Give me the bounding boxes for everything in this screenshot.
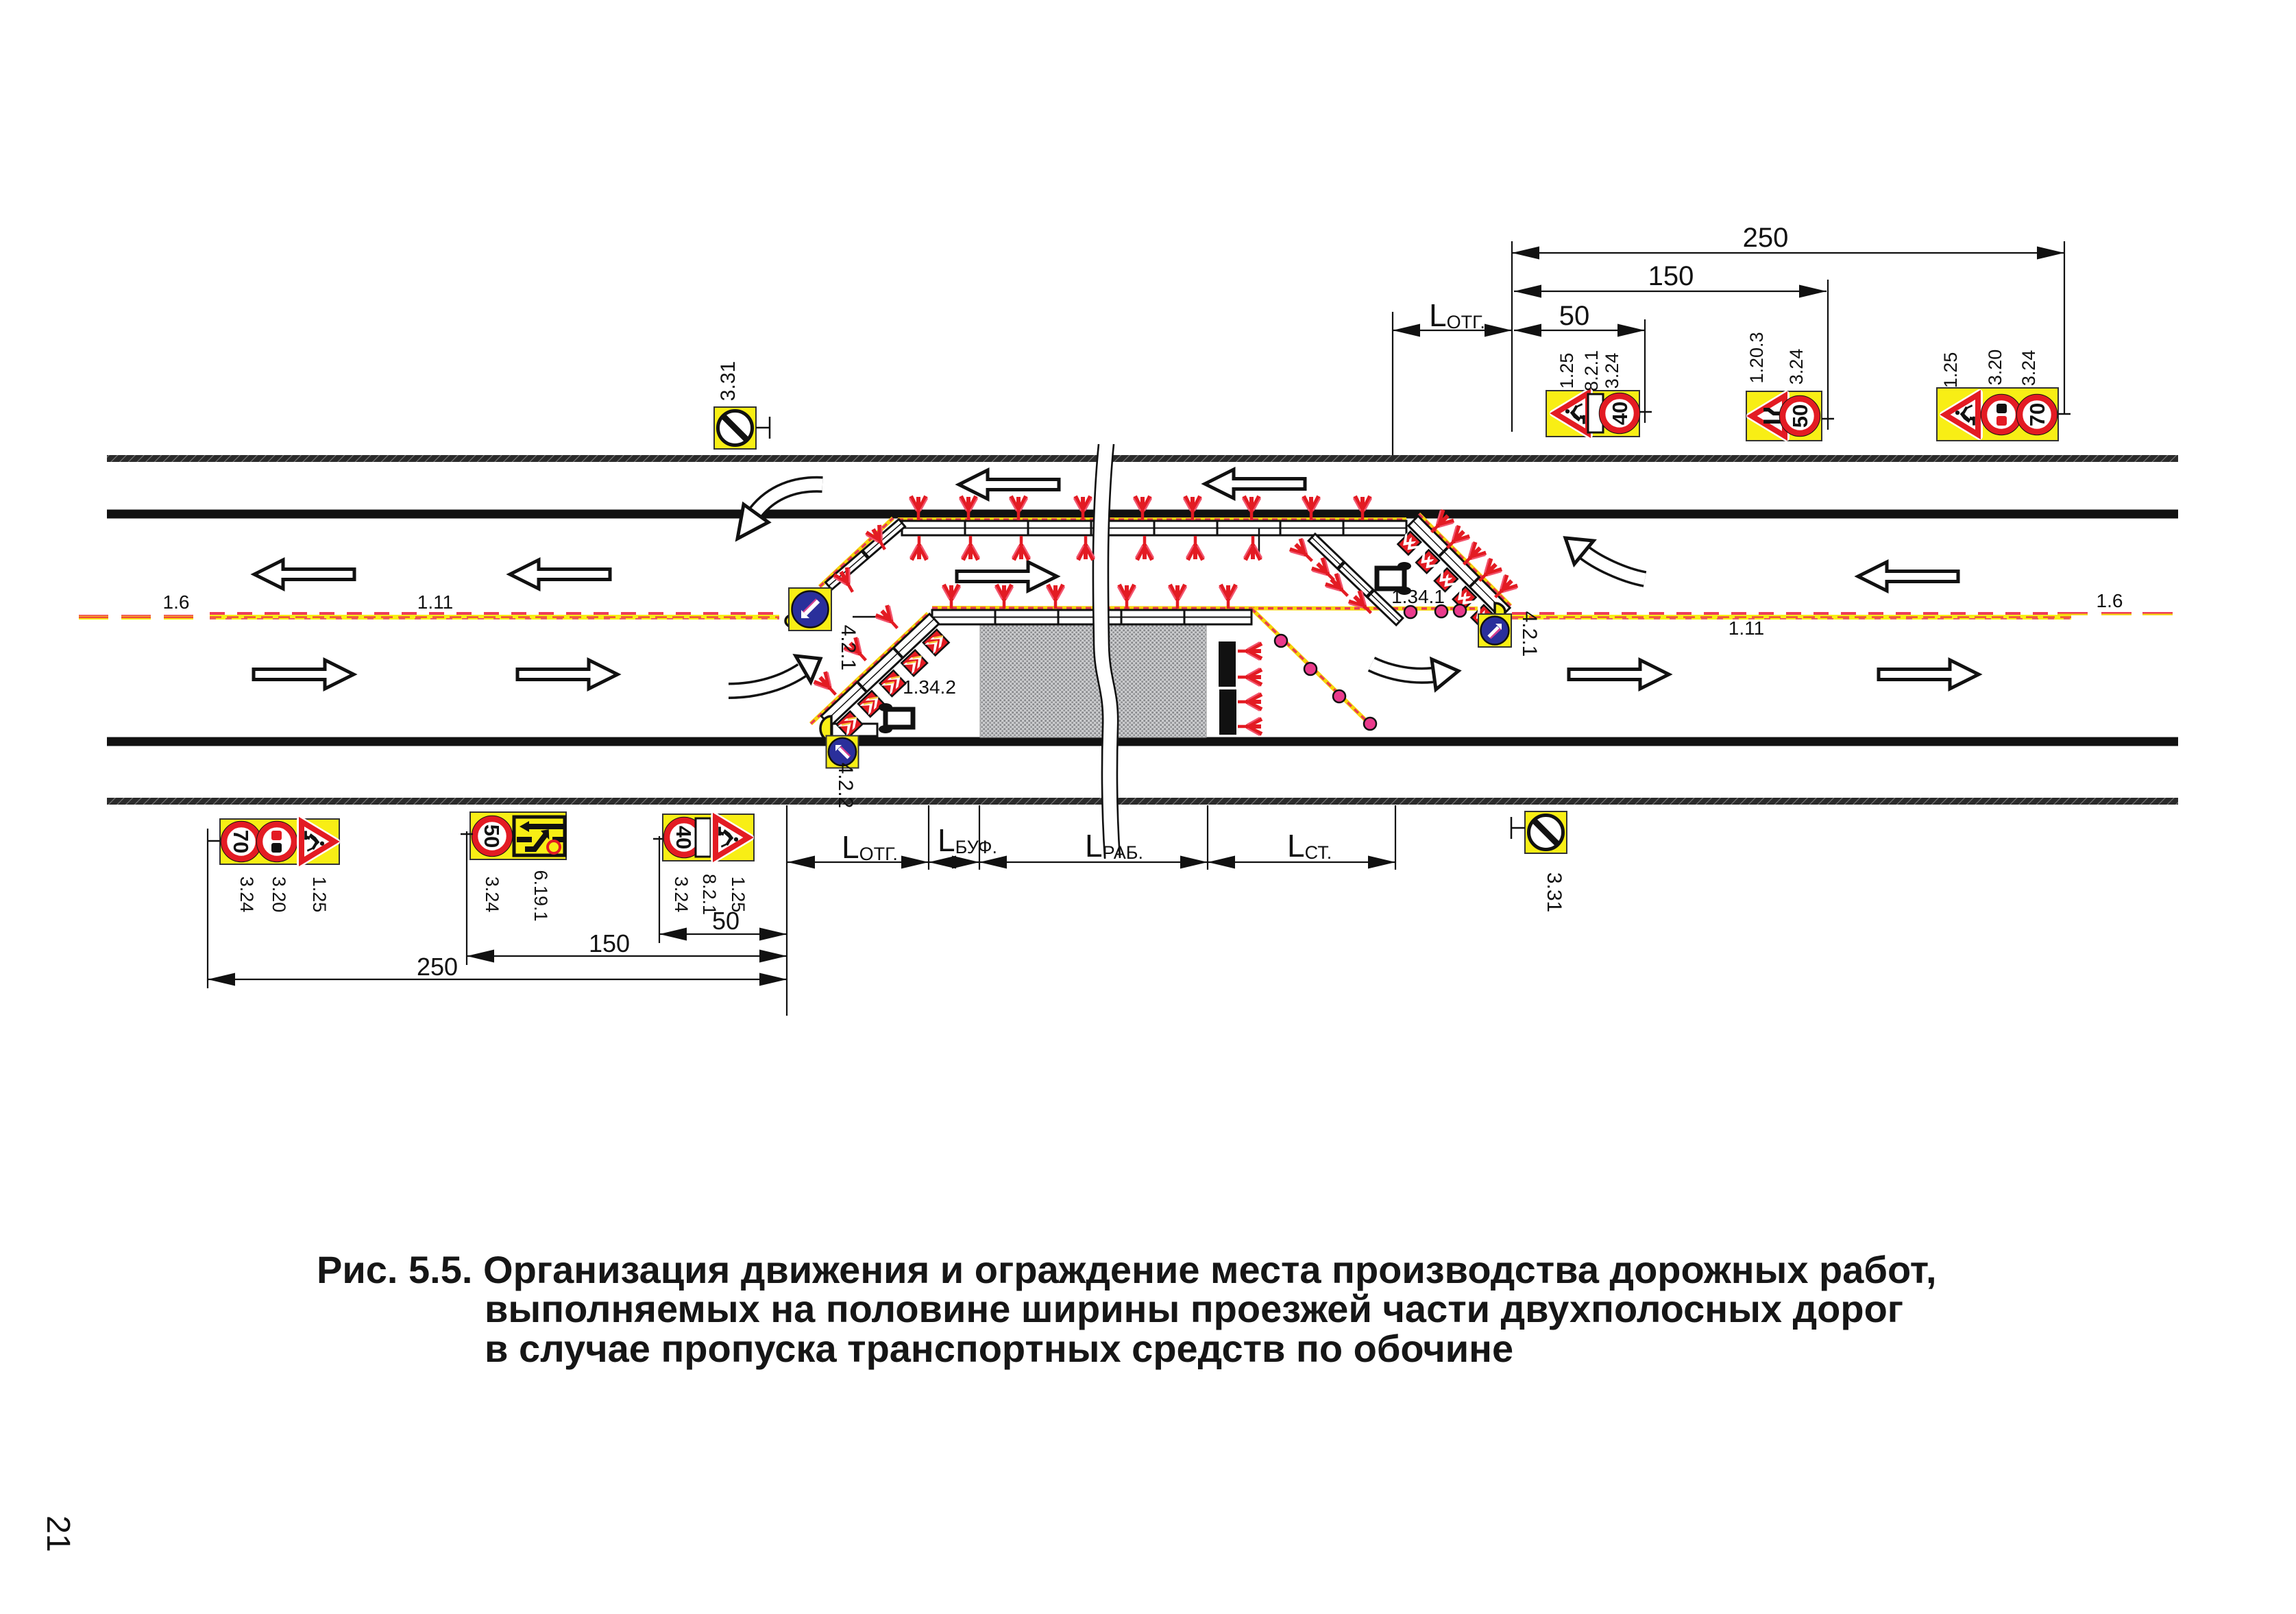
svg-text:1.11: 1.11 (1729, 618, 1764, 639)
svg-text:1.6: 1.6 (2097, 590, 2123, 611)
svg-text:4.2.1: 4.2.1 (1518, 611, 1541, 657)
svg-text:3.24: 3.24 (2018, 350, 2039, 387)
svg-text:3.20: 3.20 (269, 877, 289, 913)
svg-text:1.34.2: 1.34.2 (903, 676, 956, 698)
svg-text:LОТГ.: LОТГ. (842, 829, 898, 865)
svg-text:1.25: 1.25 (1940, 352, 1961, 389)
svg-text:1.20.3: 1.20.3 (1746, 332, 1767, 383)
svg-text:3.24: 3.24 (1602, 353, 1622, 389)
svg-text:8.2.1: 8.2.1 (1581, 350, 1602, 391)
svg-text:3.24: 3.24 (671, 877, 692, 913)
svg-text:70: 70 (2025, 403, 2049, 426)
svg-text:50: 50 (480, 824, 504, 848)
svg-text:1.11: 1.11 (417, 591, 453, 613)
svg-text:4.2.2: 4.2.2 (834, 763, 857, 809)
svg-text:выполняемых на половине ширины: выполняемых на половине ширины проезжей … (485, 1287, 1903, 1330)
svg-text:50: 50 (1788, 404, 1812, 428)
svg-text:1.25: 1.25 (1556, 353, 1577, 389)
svg-text:150: 150 (589, 929, 630, 957)
svg-text:50: 50 (712, 907, 740, 935)
svg-text:3.24: 3.24 (236, 877, 257, 913)
svg-text:40: 40 (672, 826, 696, 849)
svg-text:150: 150 (1648, 261, 1694, 291)
svg-text:Рис. 5.5. Организация движения: Рис. 5.5. Организация движения и огражде… (317, 1248, 1937, 1291)
svg-text:1.34.1: 1.34.1 (1391, 586, 1445, 607)
svg-text:6.19.1: 6.19.1 (530, 870, 551, 921)
svg-text:4.2.1: 4.2.1 (837, 625, 859, 671)
svg-text:3.24: 3.24 (1786, 349, 1807, 385)
svg-text:250: 250 (417, 953, 458, 981)
svg-text:21: 21 (40, 1515, 76, 1552)
svg-text:в случае пропуска транспортны: в случае пропуска транспортных средств п… (485, 1327, 1513, 1370)
svg-text:3.24: 3.24 (482, 877, 502, 913)
svg-text:3.31: 3.31 (1543, 872, 1565, 912)
svg-text:LОТГ.: LОТГ. (1429, 297, 1485, 333)
svg-text:70: 70 (229, 830, 253, 853)
svg-text:LСТ.: LСТ. (1287, 828, 1332, 864)
svg-text:1.6: 1.6 (163, 591, 190, 613)
svg-text:40: 40 (1608, 402, 1632, 425)
svg-text:50: 50 (1559, 301, 1590, 331)
svg-text:3.20: 3.20 (1985, 350, 2005, 386)
svg-text:1.25: 1.25 (309, 877, 330, 913)
svg-text:250: 250 (1743, 223, 1789, 253)
svg-text:LБУФ.: LБУФ. (938, 822, 997, 858)
svg-text:3.31: 3.31 (717, 361, 740, 401)
